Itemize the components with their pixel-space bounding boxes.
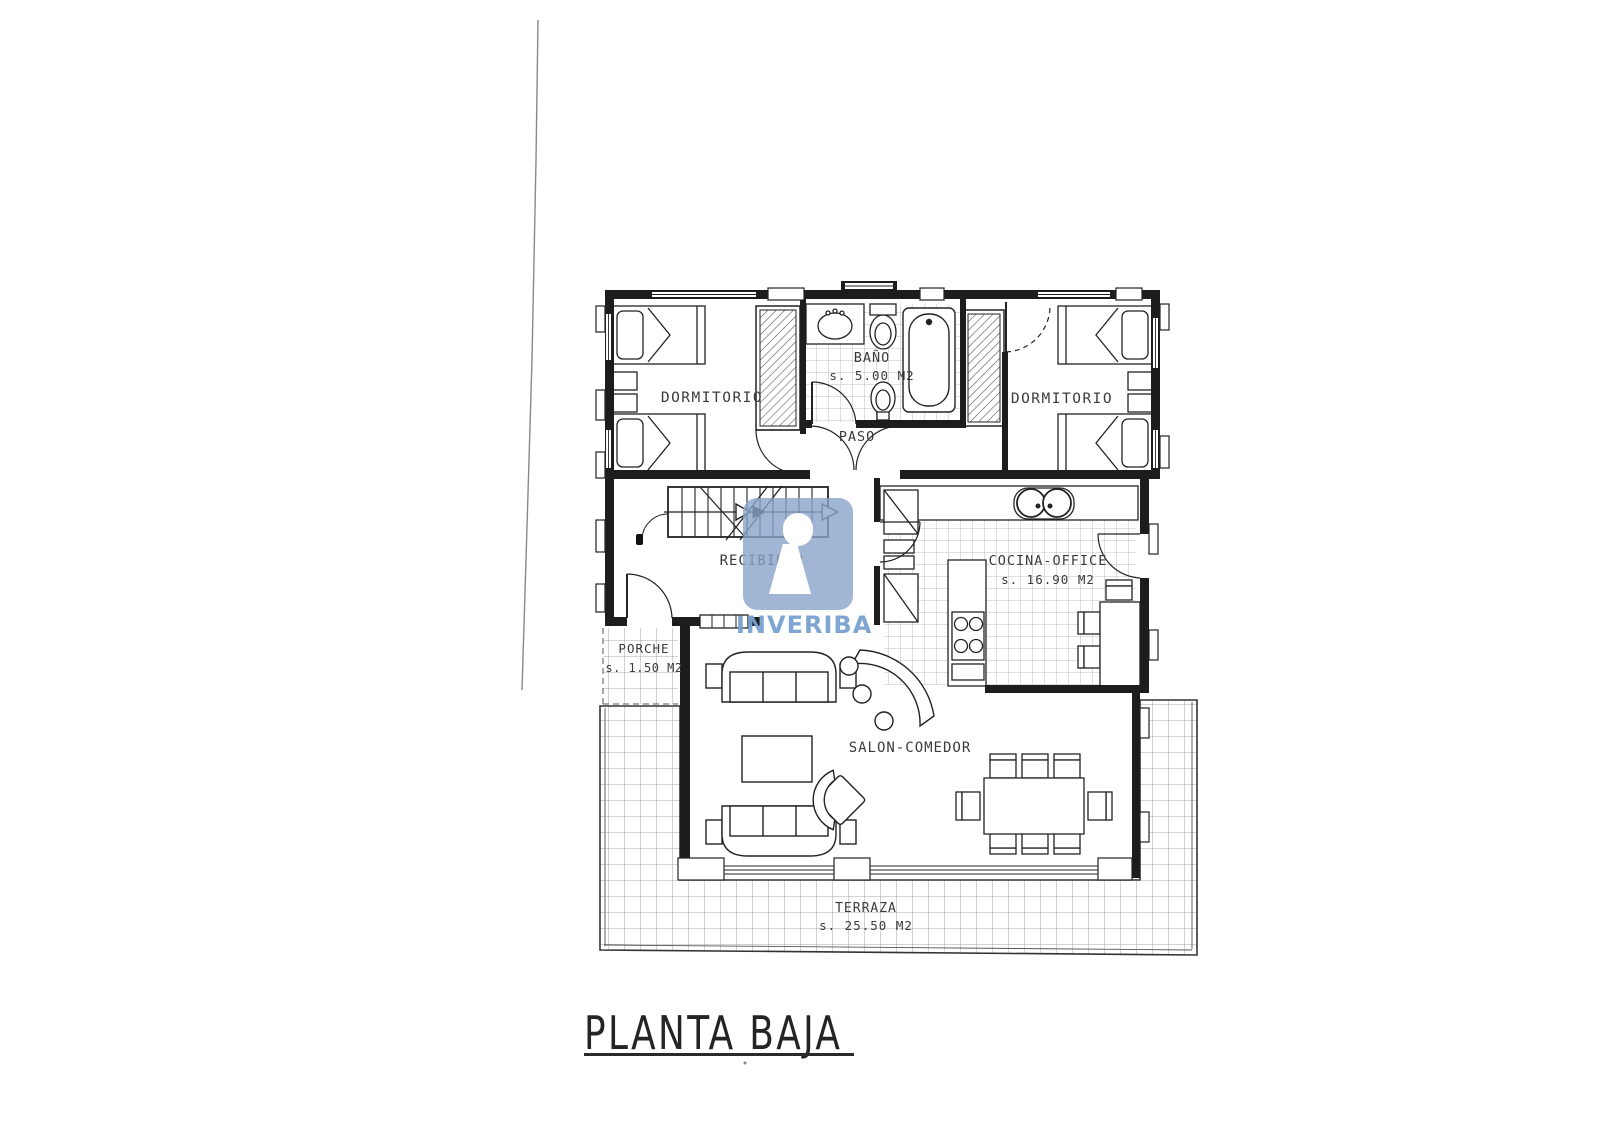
kitchen-counter bbox=[880, 486, 1138, 520]
bed bbox=[613, 414, 705, 472]
bed bbox=[613, 306, 705, 364]
sofa bbox=[706, 652, 856, 702]
bar-stool bbox=[875, 712, 893, 730]
watermark-brand: INVERIBA bbox=[736, 611, 860, 639]
room-label-cocina: COCINA-OFFICE bbox=[989, 553, 1108, 569]
dining-set bbox=[956, 754, 1112, 854]
wardrobe bbox=[756, 306, 800, 430]
room-label-bano: BAÑO bbox=[854, 349, 891, 366]
keyhole-icon bbox=[783, 513, 813, 546]
sink bbox=[806, 304, 864, 344]
scan-speck bbox=[744, 1062, 747, 1065]
nightstand bbox=[1128, 372, 1152, 390]
scan-fold-line bbox=[522, 20, 538, 690]
wardrobe bbox=[964, 310, 1004, 426]
title-underline bbox=[584, 1053, 854, 1056]
room-area-terraza: s. 25.50 M2 bbox=[819, 918, 913, 933]
bathtub bbox=[903, 308, 955, 412]
coffee-table bbox=[742, 736, 812, 782]
nightstand bbox=[1128, 394, 1152, 412]
stove bbox=[952, 612, 984, 680]
bar-stool bbox=[853, 685, 871, 703]
room-label-porche: PORCHE bbox=[618, 641, 669, 656]
page-title: PLANTA BAJA bbox=[584, 1006, 842, 1060]
bar-stool bbox=[840, 657, 858, 675]
bed bbox=[1058, 306, 1152, 364]
room-label-paso: PASO bbox=[839, 429, 876, 445]
toilet bbox=[870, 304, 896, 349]
nightstand bbox=[613, 372, 637, 390]
room-area-porche: s. 1.50 M2 bbox=[605, 661, 682, 675]
watermark-logo bbox=[743, 498, 853, 610]
room-label-dormitorio-left: DORMITORIO bbox=[661, 390, 763, 406]
nightstand bbox=[613, 394, 637, 412]
room-area-cocina: s. 16.90 M2 bbox=[1001, 572, 1095, 587]
room-label-salon: SALON-COMEDOR bbox=[849, 740, 972, 756]
room-label-dormitorio-right: DORMITORIO bbox=[1011, 391, 1113, 407]
room-label-terraza: TERRAZA bbox=[835, 901, 897, 916]
bed bbox=[1058, 414, 1152, 472]
keyhole-icon bbox=[769, 544, 811, 594]
room-area-bano: s. 5.00 M2 bbox=[829, 368, 914, 383]
